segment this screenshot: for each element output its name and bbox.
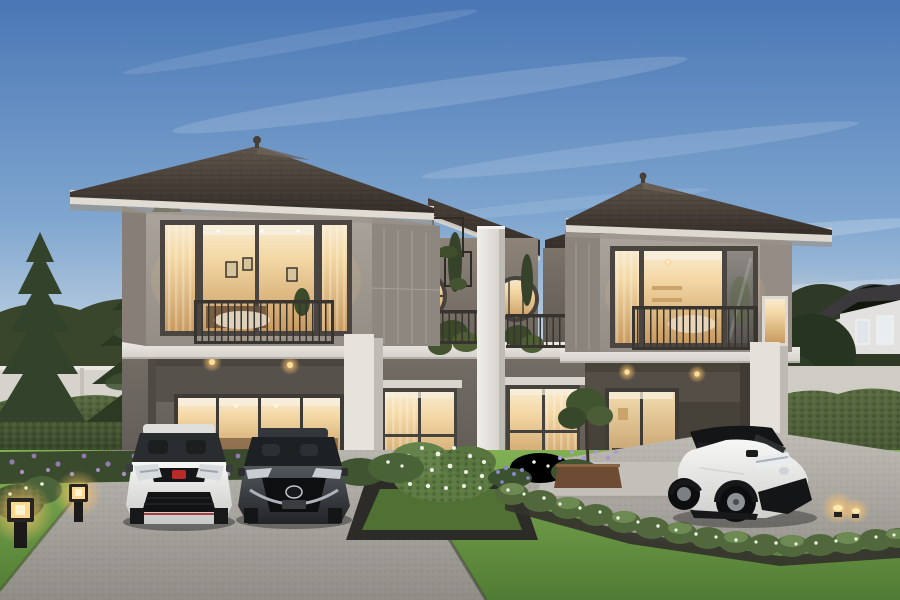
neighbor-window [877,316,893,344]
wheel [244,508,258,523]
wheel [130,508,144,524]
side-mirror [341,468,348,476]
side-mirror [126,464,133,472]
window-lintel [501,377,585,385]
neighbor-window [856,320,869,344]
divider-fin [477,226,505,472]
roof-finial [253,136,261,144]
side-mirror [746,450,758,457]
license-plate [282,500,306,509]
lower-intake [142,492,216,512]
windshield [132,433,226,462]
brand-badge [286,486,302,498]
dark-sedan-car [236,428,352,529]
left-wing-side-wall [370,216,440,346]
right-side-window [762,296,788,346]
brand-badge [779,467,789,475]
side-mirror [226,464,233,472]
windshield [244,437,342,466]
white-hatchback-car [123,424,235,531]
wheel [328,508,342,523]
brand-badge [172,470,186,479]
right-wing-side-wall [565,230,600,352]
left-balcony-railing [194,300,334,344]
side-mirror [238,468,245,476]
wheel [214,508,228,524]
roof-finial [640,173,647,180]
architectural-rendering [0,0,900,600]
left-wing-edge-wall [122,206,146,346]
window-lintel [376,380,462,388]
right-balcony-railing [632,306,758,350]
rendering-stage [0,0,900,600]
